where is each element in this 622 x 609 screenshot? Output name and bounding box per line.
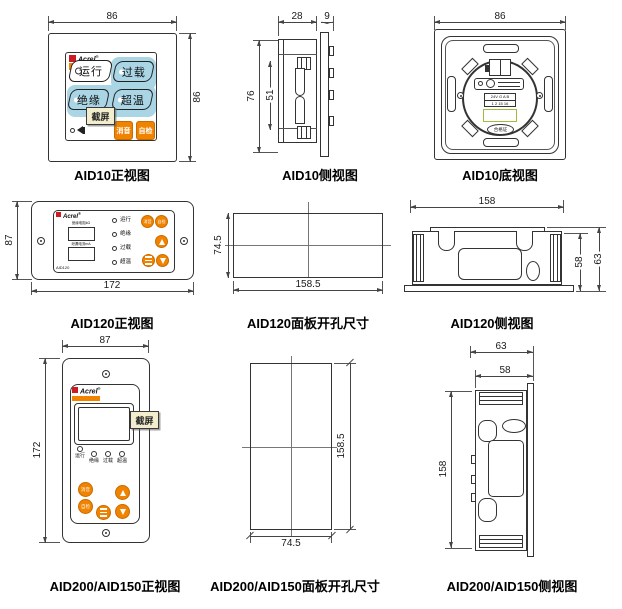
mute-button: 消音	[78, 482, 93, 497]
selftest-label: 自检	[139, 126, 153, 136]
cert-oval: 合格证	[487, 124, 514, 135]
dim-line	[62, 346, 149, 347]
overtemp-led	[112, 260, 117, 265]
dim-arrow	[410, 205, 416, 209]
spring-finger	[295, 96, 305, 124]
dim-line	[259, 40, 260, 153]
cable-entry-divider	[500, 60, 501, 75]
set-button	[142, 254, 155, 267]
dim-arrow	[560, 20, 566, 24]
dim-value: 74.5	[279, 539, 302, 549]
dip-small-circle	[478, 81, 483, 86]
clip-line	[553, 235, 554, 281]
front-plate-side	[527, 383, 534, 557]
dim-arrow	[377, 288, 383, 292]
display1-label: 绝缘电阻kΩ	[72, 222, 90, 226]
clip-block-top	[479, 392, 523, 405]
logo-bar	[72, 396, 100, 401]
dim-line	[233, 290, 383, 291]
caption-aid200-side: AID200/AID150侧视图	[447, 576, 578, 595]
ext-line	[445, 548, 472, 549]
overload-led	[105, 451, 111, 457]
rail-mark	[329, 116, 334, 126]
dim-value: 86	[104, 12, 119, 22]
dim-arrow	[558, 205, 564, 209]
drawing-sheet: 86 86 Acrel® AID10 运行 过载 绝缘 超温 截屏 消音 自检 …	[0, 0, 622, 609]
caption-aid200-front: AID200/AID150正视图	[50, 576, 181, 595]
insulation-led	[112, 232, 117, 237]
dim-arrow	[143, 344, 149, 348]
spring-finger	[295, 68, 305, 96]
mute-button: 消音	[114, 121, 133, 140]
overload-led-label: 过载	[103, 459, 113, 464]
dim-line	[350, 363, 351, 530]
vent-slot-top	[483, 44, 519, 53]
up-button	[115, 485, 130, 500]
clip-line	[480, 539, 522, 540]
brand-text: Acrel®	[80, 386, 100, 395]
clip-line	[480, 396, 522, 397]
run-led	[112, 218, 117, 223]
screw-dot	[105, 532, 107, 534]
caption-aid10-front: AID10正视图	[74, 165, 150, 184]
screw-dot	[539, 95, 541, 97]
overtemp-label: 超温	[121, 92, 145, 108]
dim-arrow	[597, 227, 601, 233]
dim-arrow	[226, 213, 230, 219]
ext-line	[564, 233, 588, 234]
label-window	[483, 109, 517, 122]
label-recess	[488, 440, 524, 497]
run-indicator: 运行	[68, 60, 114, 82]
snap-bump	[478, 498, 497, 522]
ext-line	[576, 291, 606, 292]
side-slot-left	[447, 76, 456, 112]
overload-led	[112, 246, 117, 251]
dim-arrow	[171, 20, 177, 24]
dim-arrow	[43, 537, 47, 543]
clip-column	[550, 234, 561, 282]
selftest-button: 自检	[136, 121, 155, 140]
brand-label: Acrel	[63, 214, 78, 220]
overload-indicator: 过载	[112, 61, 155, 82]
dim-arrow	[43, 358, 47, 364]
dim-line	[451, 391, 452, 548]
mount-clip	[297, 126, 311, 139]
dim-arrow	[278, 20, 284, 24]
speaker-icon	[83, 127, 85, 134]
dim-value: 87	[97, 336, 112, 346]
clip-line	[420, 235, 421, 281]
dim-arrow	[15, 201, 19, 207]
dim-value: 63	[493, 342, 508, 352]
clip-column	[413, 234, 424, 282]
side-oval	[502, 419, 526, 433]
dim-arrow	[31, 289, 37, 293]
display1	[68, 227, 95, 241]
up-arrow-icon	[159, 239, 165, 245]
screenshot-tooltip: 截屏	[86, 107, 115, 125]
ext-line	[533, 346, 534, 381]
down-button	[156, 254, 169, 267]
acrel-logo-mark	[72, 387, 78, 393]
dim-value: 58	[497, 366, 512, 376]
set-button	[96, 505, 111, 520]
ext-line	[334, 529, 356, 530]
dim-value: 86	[193, 89, 203, 104]
reg-mark: ®	[96, 54, 99, 59]
mute-label: 消音	[117, 126, 131, 136]
clip-line	[416, 235, 417, 281]
dim-value: 158	[477, 197, 498, 207]
dim-arrow	[257, 147, 261, 153]
brand-label: Acrel	[80, 388, 98, 395]
model-label: AID120	[56, 266, 69, 270]
overload-label: 过载	[122, 64, 146, 80]
clip-line	[301, 127, 302, 138]
dim-value: 172	[33, 440, 43, 461]
clip-line	[306, 58, 307, 69]
rail-mark	[329, 46, 334, 56]
dim-line	[250, 536, 332, 537]
clip-line	[306, 127, 307, 138]
dim-value: 51	[266, 87, 276, 102]
left-tab	[471, 475, 476, 484]
screw-dot	[105, 373, 107, 375]
rail-mark	[329, 90, 334, 100]
dim-arrow	[434, 20, 440, 24]
caption-aid120-front: AID120正视图	[70, 313, 153, 332]
down-arrow-icon	[120, 509, 126, 515]
dim-arrow	[475, 374, 481, 378]
dim-value: 172	[102, 281, 123, 291]
speaker-icon	[70, 128, 75, 133]
cutout-rect	[250, 363, 332, 530]
dim-value: 87	[5, 232, 15, 247]
caption-aid120-side: AID120侧视图	[450, 313, 533, 332]
side-oval	[526, 261, 540, 281]
terminal-row1: 24V G A B	[485, 94, 515, 101]
clip-line	[480, 400, 522, 401]
brand-text: Acrel®	[63, 211, 81, 220]
dim-value: 9	[322, 12, 332, 22]
run-label: 运行	[79, 63, 103, 79]
dim-line	[470, 352, 533, 353]
overtemp-led-label: 超温	[117, 459, 127, 464]
dim-arrow	[268, 124, 272, 130]
dim-line	[190, 33, 191, 162]
dim-value: 63	[594, 251, 604, 266]
screw-dot	[183, 240, 185, 242]
dim-arrow	[449, 391, 453, 397]
run-led-label: 运行	[75, 454, 85, 459]
dim-value: 158.5	[337, 431, 347, 460]
dim-arrow	[578, 285, 582, 291]
down-button	[115, 504, 130, 519]
dim-line	[31, 291, 194, 292]
reg-mark: ®	[78, 211, 81, 216]
dim-value: 58	[575, 254, 585, 269]
caption-aid120-cutout: AID120面板开孔尺寸	[247, 313, 369, 332]
dim-arrow	[233, 288, 239, 292]
dim-arrow	[527, 374, 533, 378]
ext-line	[475, 370, 476, 388]
caption-aid10-bottom: AID10底视图	[462, 165, 538, 184]
dim-line	[228, 213, 229, 278]
body-inner-line	[279, 54, 317, 55]
caption-aid200-cutout: AID200/AID150面板开孔尺寸	[210, 576, 380, 595]
cable-entry-tab	[485, 65, 489, 72]
dim-arrow	[226, 272, 230, 278]
insulation-led-label: 绝缘	[89, 459, 99, 464]
display2-label: 泄漏电流mA	[71, 243, 90, 247]
dip-line	[498, 82, 520, 83]
insulation-label: 绝缘	[77, 92, 101, 108]
dim-arrow	[257, 40, 261, 46]
dim-arrow	[470, 350, 476, 354]
screw-dot	[40, 240, 42, 242]
dim-arrow	[15, 274, 19, 280]
dim-line	[434, 22, 566, 23]
snap-bump	[478, 420, 497, 442]
dim-value: 74.5	[214, 233, 224, 256]
mute-button: 消音	[141, 215, 154, 228]
caption-aid10-side: AID10侧视图	[282, 165, 358, 184]
snap-notch	[438, 231, 455, 251]
clip-block-bottom	[479, 535, 523, 548]
clip-line	[480, 543, 522, 544]
dim-value: 158	[439, 459, 449, 480]
selftest-button: 自检	[78, 499, 93, 514]
dim-line	[48, 22, 177, 23]
dim-value: 76	[247, 88, 257, 103]
dip-big-circle	[486, 79, 495, 88]
run-led-label: 运行	[120, 218, 131, 224]
front-plate-side	[320, 32, 329, 157]
clip-line	[557, 235, 558, 281]
overtemp-led	[119, 451, 125, 457]
dim-arrow	[268, 61, 272, 67]
screenshot-tooltip: 截屏	[130, 411, 159, 429]
dim-arrow	[578, 233, 582, 239]
terminal-row2: 1 2 15 16	[485, 101, 515, 107]
dim-line	[17, 201, 18, 280]
ext-line	[333, 16, 334, 31]
display	[78, 407, 130, 441]
dim-line	[475, 376, 533, 377]
dip-line	[498, 86, 520, 87]
up-arrow-icon	[120, 490, 126, 496]
down-arrow-icon	[160, 258, 166, 264]
dim-arrow	[62, 344, 68, 348]
rail-mark	[329, 68, 334, 78]
reg-mark: ®	[98, 386, 101, 391]
side-slot-right	[544, 76, 553, 112]
label-recess	[458, 248, 522, 280]
body-inner-line	[283, 40, 284, 142]
dim-arrow	[527, 350, 533, 354]
insulation-led	[91, 451, 97, 457]
screw-dot	[460, 95, 462, 97]
display2	[68, 247, 95, 261]
dim-arrow	[597, 285, 601, 291]
dim-arrow	[48, 20, 54, 24]
dim-arrow	[188, 156, 192, 162]
dim-value: 28	[289, 12, 304, 22]
left-tab	[471, 493, 476, 502]
terminal-label: 24V G A B 1 2 15 16	[484, 93, 516, 107]
dim-arrow	[311, 20, 317, 24]
dim-line	[410, 207, 564, 208]
insulation-led-label: 绝缘	[120, 232, 131, 238]
bottom-flange	[404, 285, 574, 292]
overtemp-indicator: 超温	[111, 89, 154, 110]
cert-label: 合格证	[494, 127, 508, 133]
run-led	[77, 446, 83, 452]
dim-tick	[328, 532, 336, 540]
dim-value: 86	[492, 12, 507, 22]
acrel-logo-mark	[56, 212, 61, 217]
dim-arrow	[188, 33, 192, 39]
dim-arrow	[449, 542, 453, 548]
vent-slot-bottom	[483, 138, 519, 147]
overtemp-led-label: 超温	[120, 260, 131, 266]
cutout-rect	[233, 213, 383, 278]
left-tab	[471, 455, 476, 464]
selftest-button: 自检	[155, 215, 168, 228]
overload-led-label: 过载	[120, 246, 131, 252]
ext-line	[334, 363, 356, 364]
dim-value: 158.5	[293, 280, 322, 290]
up-button	[155, 235, 168, 248]
dim-arrow	[188, 289, 194, 293]
dim-line	[45, 358, 46, 543]
